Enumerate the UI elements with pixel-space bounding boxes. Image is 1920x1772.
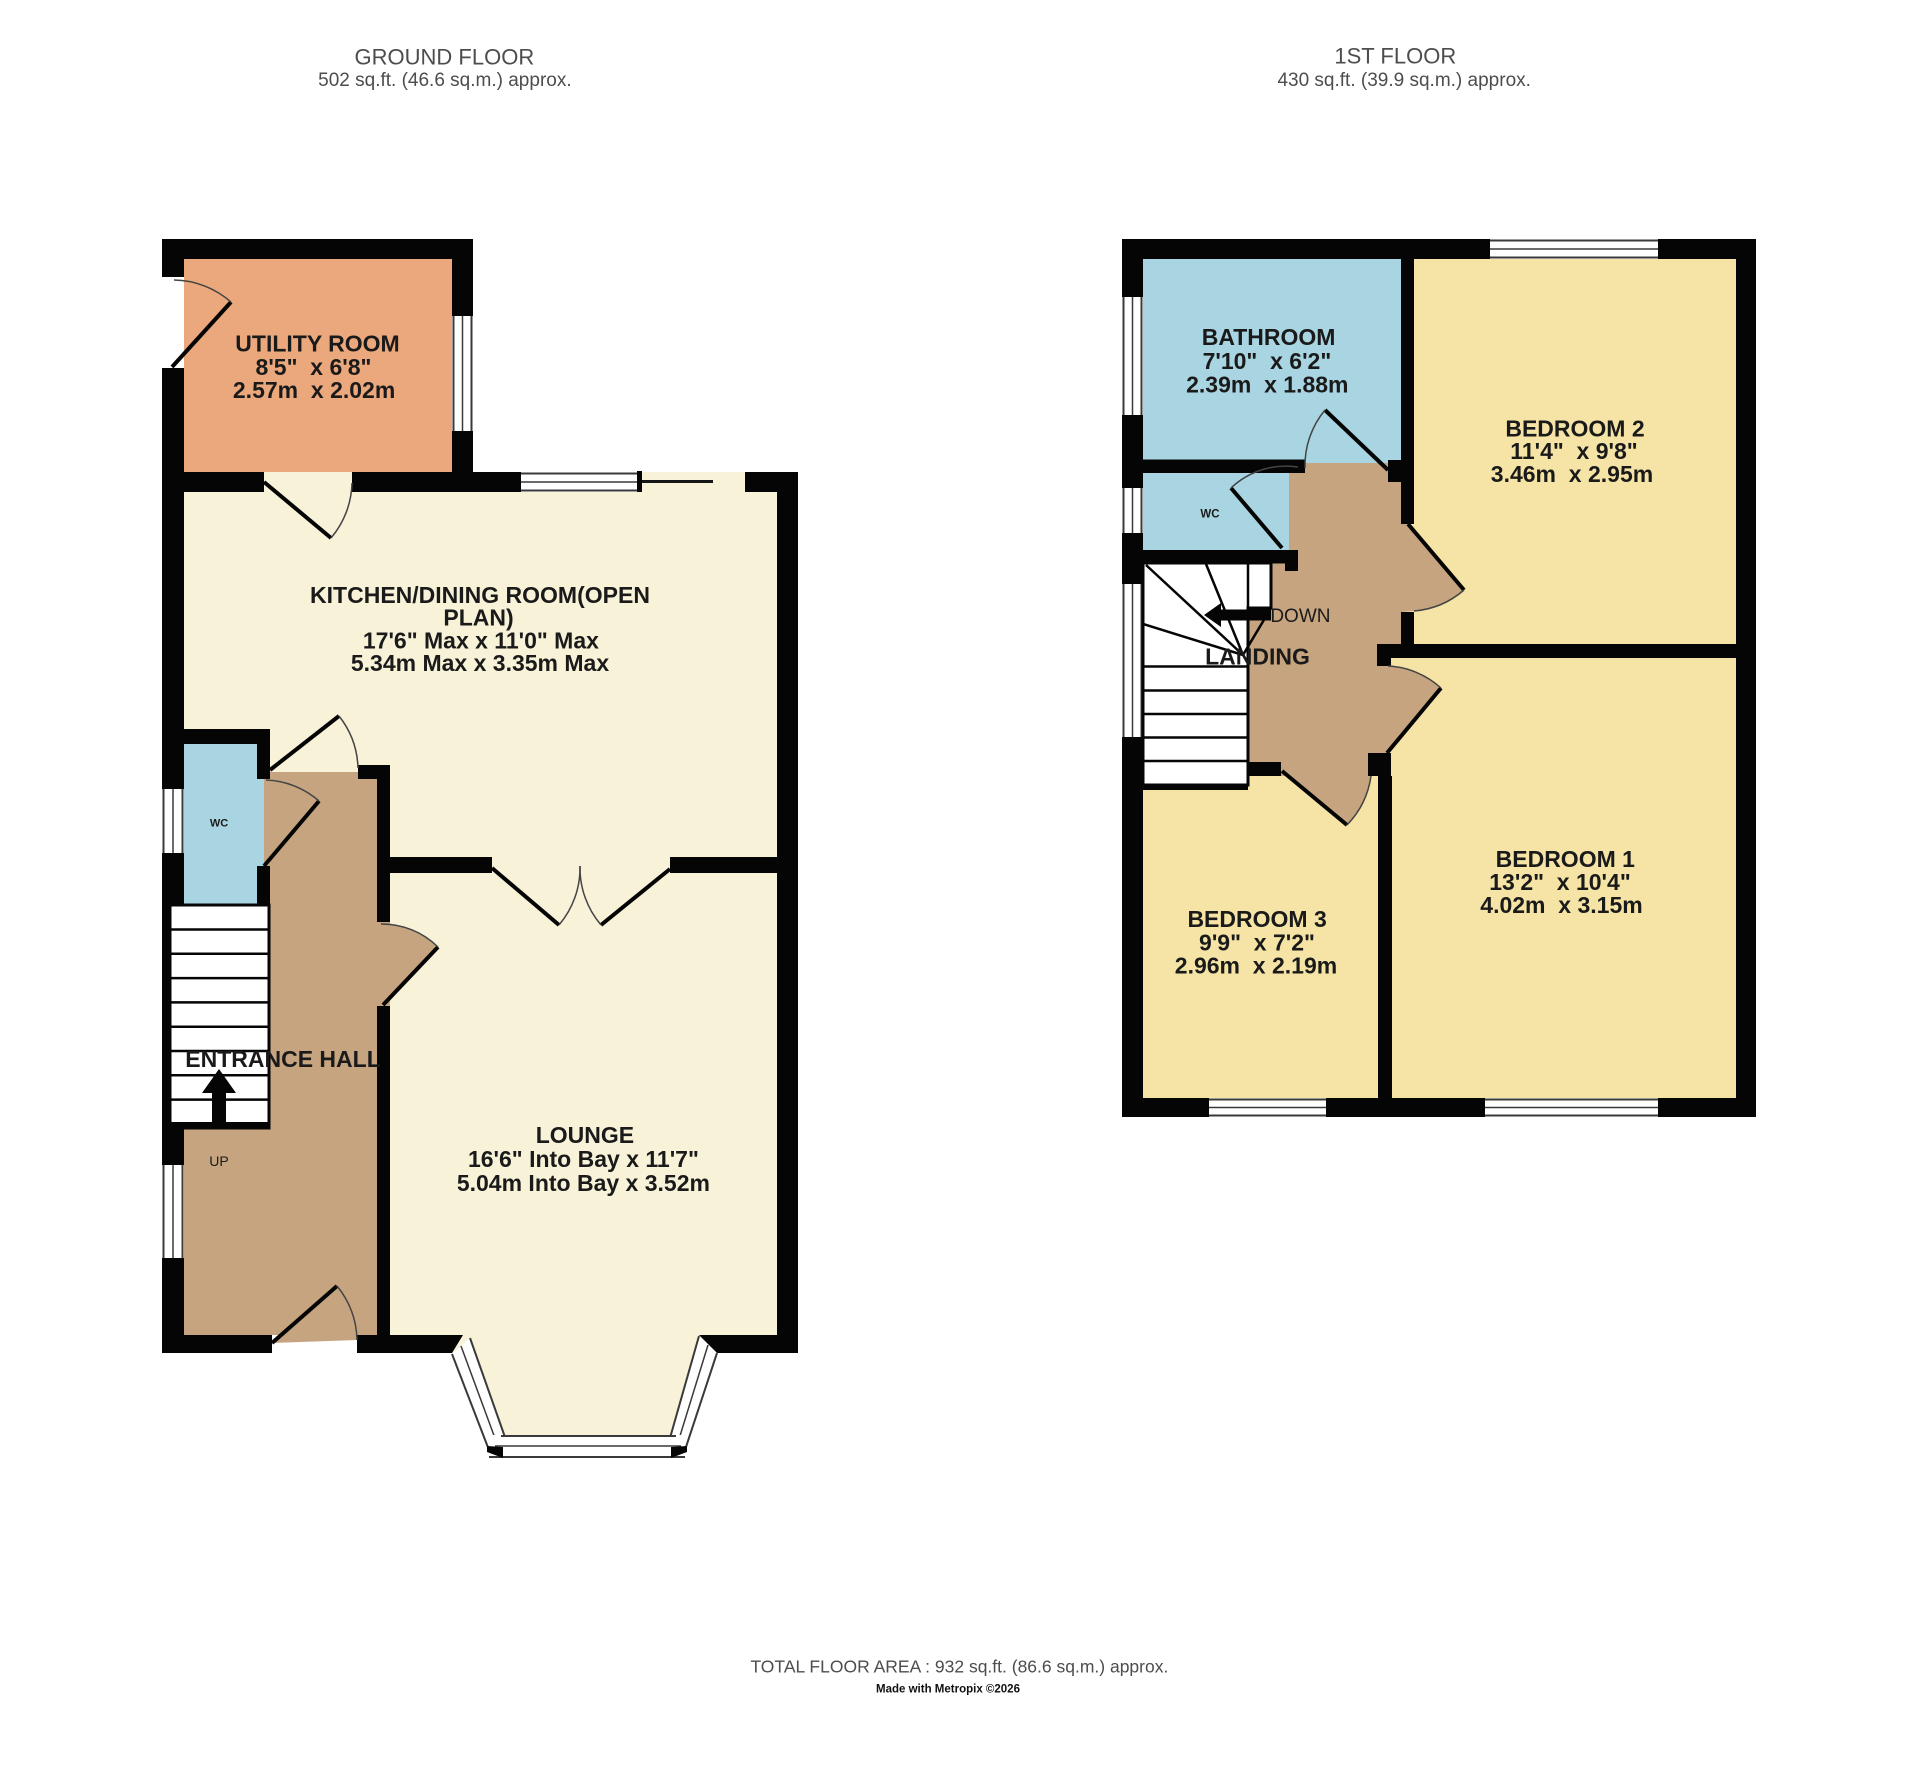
svg-text:UP: UP	[209, 1153, 228, 1169]
svg-text:2.96m x 2.19m: 2.96m x 2.19m	[1175, 953, 1337, 979]
svg-text:1ST FLOOR: 1ST FLOOR	[1334, 43, 1456, 68]
svg-text:DOWN: DOWN	[1270, 606, 1330, 627]
svg-text:2.57m x 2.02m: 2.57m x 2.02m	[233, 377, 395, 403]
svg-text:LOUNGE: LOUNGE	[536, 1122, 634, 1148]
svg-text:BEDROOM 3: BEDROOM 3	[1187, 906, 1326, 932]
svg-text:5.34m Max x 3.35m Max: 5.34m Max x 3.35m Max	[351, 650, 609, 676]
svg-text:9'9" x 7'2": 9'9" x 7'2"	[1199, 929, 1315, 955]
svg-text:GROUND FLOOR: GROUND FLOOR	[355, 44, 535, 69]
svg-text:430 sq.ft. (39.9 sq.m.) approx: 430 sq.ft. (39.9 sq.m.) approx.	[1277, 70, 1530, 91]
svg-text:8'5" x 6'8": 8'5" x 6'8"	[256, 354, 372, 380]
svg-text:BEDROOM 1: BEDROOM 1	[1496, 846, 1636, 872]
svg-text:4.02m x 3.15m: 4.02m x 3.15m	[1480, 892, 1642, 918]
svg-text:2.39m x 1.88m: 2.39m x 1.88m	[1186, 372, 1348, 398]
svg-text:502 sq.ft. (46.6 sq.m.) approx: 502 sq.ft. (46.6 sq.m.) approx.	[318, 70, 571, 91]
svg-text:WC: WC	[210, 818, 228, 830]
svg-text:UTILITY ROOM: UTILITY ROOM	[235, 330, 399, 356]
svg-text:16'6" Into Bay x 11'7": 16'6" Into Bay x 11'7"	[468, 1146, 699, 1172]
svg-text:TOTAL FLOOR AREA : 932 sq.ft.: TOTAL FLOOR AREA : 932 sq.ft. (86.6 sq.m…	[750, 1657, 1168, 1677]
svg-text:Made with Metropix ©2026: Made with Metropix ©2026	[876, 1683, 1020, 1695]
svg-text:3.46m x 2.95m: 3.46m x 2.95m	[1491, 461, 1653, 487]
svg-text:WC: WC	[1200, 509, 1219, 521]
svg-text:BATHROOM: BATHROOM	[1202, 324, 1336, 350]
svg-text:LANDING: LANDING	[1205, 643, 1310, 669]
svg-text:5.04m Into Bay x 3.52m: 5.04m Into Bay x 3.52m	[457, 1170, 710, 1196]
svg-text:7'10" x 6'2": 7'10" x 6'2"	[1203, 348, 1332, 374]
svg-text:ENTRANCE HALL: ENTRANCE HALL	[185, 1046, 381, 1072]
